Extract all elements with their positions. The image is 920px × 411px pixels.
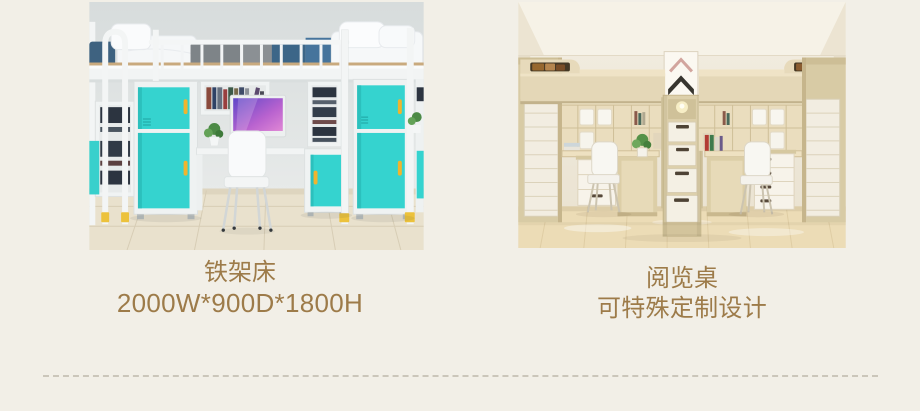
teal-locker-left [134,81,197,219]
product-gallery-section: 铁架床 2000W*900D*1800H 阅览桌 可特殊定制设计 [0,0,920,411]
product-spec-reading-desk: 可特殊定制设计 [517,294,847,324]
teal-locker-right [353,79,411,219]
dashed-divider [43,375,878,377]
product-title-iron-bed: 铁架床 [75,258,405,288]
product-photo-reading-desk[interactable] [517,2,847,248]
product-photo-iron-bed[interactable] [88,2,425,250]
right-wardrobe [802,58,846,223]
product-spec-iron-bed: 2000W*900D*1800H [75,288,405,318]
product-caption-iron-bed: 铁架床 2000W*900D*1800H [75,258,405,318]
reading-desk-illustration [517,2,847,248]
product-caption-reading-desk: 阅览桌 可特殊定制设计 [517,264,847,324]
chevron-wall-art [664,52,698,98]
product-title-reading-desk: 阅览桌 [517,264,847,294]
center-stair-drawer-tower [661,95,703,236]
iron-bunk-bed-illustration [88,2,425,250]
